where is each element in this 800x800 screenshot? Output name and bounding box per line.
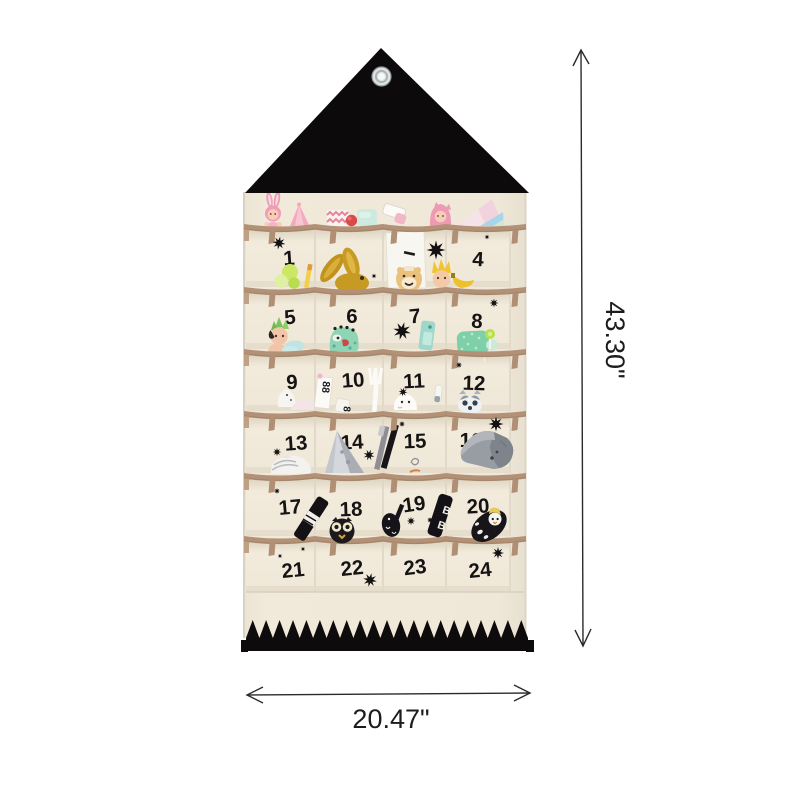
svg-text:4: 4 [472,248,485,272]
svg-text:17: 17 [278,495,303,520]
svg-text:24: 24 [468,558,494,583]
svg-text:18: 18 [339,498,363,522]
svg-text:23: 23 [402,555,427,581]
svg-text:20.47": 20.47" [352,704,429,734]
svg-text:22: 22 [340,556,365,581]
svg-text:6: 6 [346,305,357,328]
svg-text:13: 13 [284,431,308,456]
svg-text:12: 12 [462,372,486,396]
svg-text:21: 21 [281,558,306,583]
svg-text:8: 8 [471,310,483,333]
svg-text:10: 10 [341,368,365,393]
svg-text:88: 88 [319,381,332,394]
svg-text:15: 15 [403,430,427,454]
svg-text:7: 7 [408,304,422,328]
svg-text:19: 19 [401,492,427,518]
svg-text:43.30": 43.30" [600,301,630,378]
